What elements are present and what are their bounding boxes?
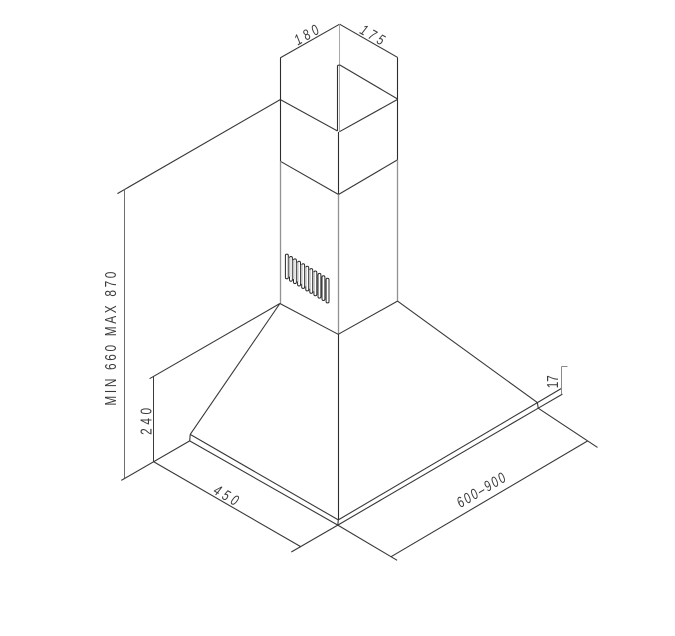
svg-text:240: 240 [137, 408, 155, 435]
svg-text:17: 17 [543, 375, 561, 388]
